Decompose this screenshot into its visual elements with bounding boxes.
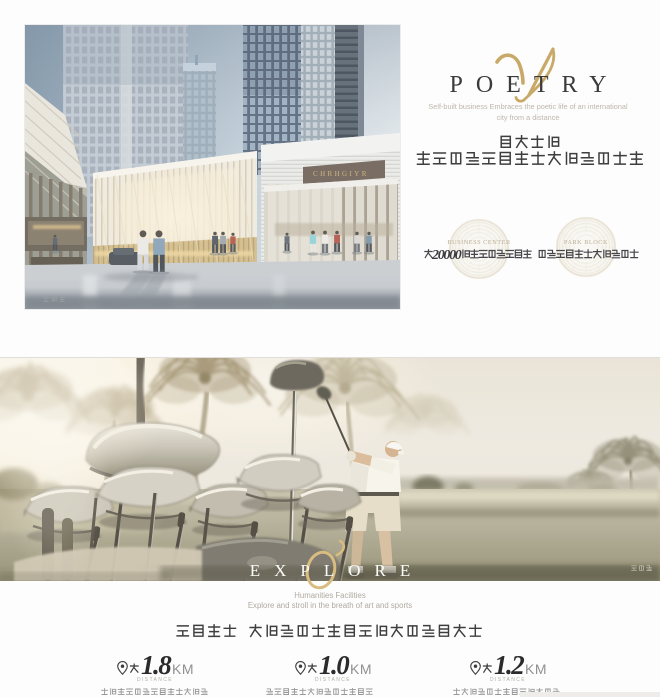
svg-text:20000: 20000 [431,248,462,262]
